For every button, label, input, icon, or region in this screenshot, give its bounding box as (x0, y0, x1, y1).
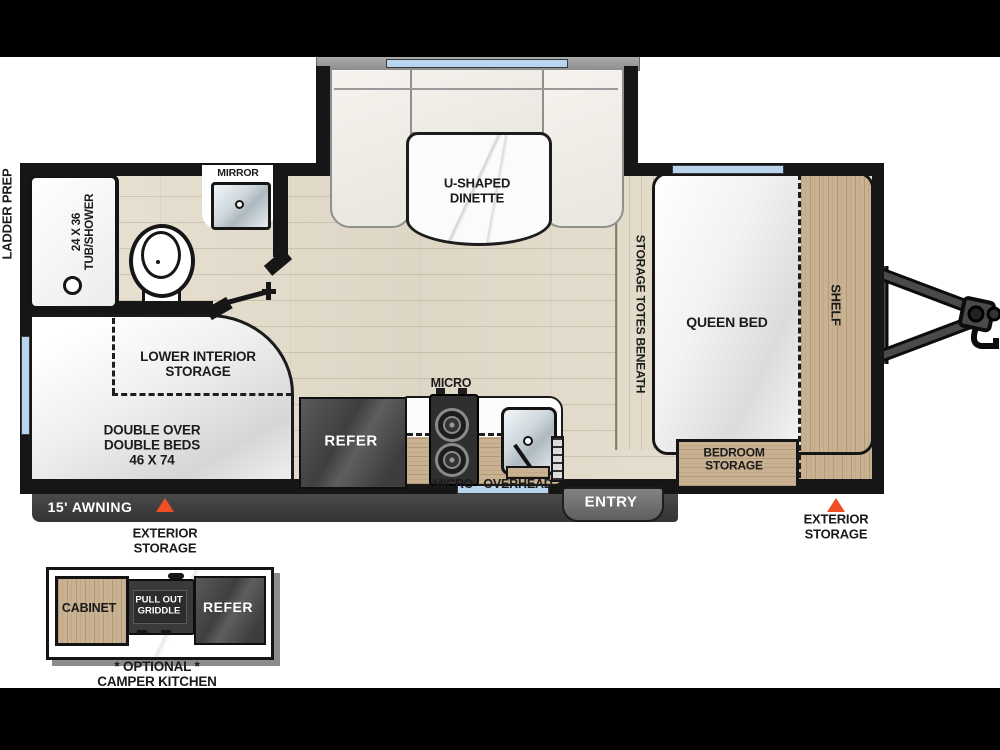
double-beds-label: DOUBLE OVER DOUBLE BEDS 46 X 74 (104, 422, 201, 467)
letterbox-top (0, 0, 1000, 57)
lower-interior-storage-label: LOWER INTERIOR STORAGE (140, 349, 256, 379)
wall-right (872, 163, 884, 494)
lis-line2: STORAGE (140, 364, 256, 379)
mirror-label: MIRROR (217, 168, 258, 180)
sink-drain-dot (235, 200, 244, 209)
tub-shower-label: 24 X 36 TUB/SHOWER (71, 194, 97, 271)
dinette-label-line1: U-SHAPED (444, 176, 510, 191)
dinette-bench-divider (334, 88, 618, 90)
tub-drain-icon (63, 276, 82, 295)
awning-marker-triangle (156, 498, 174, 512)
beds-line3: 46 X 74 (104, 453, 201, 468)
exterior-storage-right-triangle (827, 498, 845, 512)
kitchen-sink-drain (523, 436, 533, 446)
lis-line1: LOWER INTERIOR (140, 349, 256, 364)
caption-line1: * OPTIONAL * (97, 659, 216, 674)
overhead-label: OVERHEAD (483, 477, 552, 491)
bs-line1: BEDROOM (703, 447, 764, 460)
beds-line2: DOUBLE BEDS (104, 437, 201, 452)
awning-label: 15' AWNING (48, 500, 133, 516)
esl-line2: STORAGE (133, 541, 198, 556)
door-latch-horizontal (262, 289, 276, 294)
bunk-storage-dash-horizontal (112, 393, 292, 396)
left-wall-window (21, 336, 30, 435)
esr-line1: EXTERIOR (804, 512, 869, 527)
burner-icon-bottom (435, 443, 469, 477)
esl-line1: EXTERIOR (133, 526, 198, 541)
cabinet-label: CABINET (62, 601, 116, 615)
tub-label-line1: 24 X 36 (71, 194, 84, 271)
camper-kitchen-caption: * OPTIONAL * CAMPER KITCHEN (97, 659, 216, 689)
griddle-foot-left (137, 630, 147, 634)
toilet-bowl-inner (141, 231, 181, 279)
micro-top-label: MICRO (431, 376, 472, 390)
dinette-bench-left (330, 68, 412, 228)
letterbox-bottom (0, 688, 1000, 750)
ladder-prep-label: LADDER PREP (1, 169, 16, 260)
shelf-dash-line (798, 174, 801, 478)
dinette-label: U-SHAPED DINETTE (444, 176, 510, 205)
toilet-drain-dot (156, 260, 160, 264)
dinette-slideout-wall-right (624, 66, 638, 176)
griddle-line2: GRIDDLE (135, 606, 182, 617)
dinette-bench-right (542, 68, 624, 228)
dinette-label-line2: DINETTE (444, 191, 510, 206)
camper-refer-label: REFER (203, 600, 253, 616)
entry-label: ENTRY (585, 495, 638, 512)
bs-line2: STORAGE (703, 460, 764, 473)
floorplan-canvas: U-SHAPED DINETTE 24 X 36 TUB/SHOWER MIRR… (0, 0, 1000, 750)
tub-label-line2: TUB/SHOWER (84, 194, 97, 271)
exterior-storage-right-label: EXTERIOR STORAGE (804, 512, 869, 541)
beds-line1: DOUBLE OVER (104, 422, 201, 437)
exterior-storage-left-label: EXTERIOR STORAGE (133, 526, 198, 555)
refer-label: REFER (324, 434, 377, 451)
dinette-window (386, 59, 568, 68)
bathroom-partition-wall (273, 163, 288, 257)
dinette-slideout-wall-left (316, 66, 330, 176)
bedroom-storage-label: BEDROOM STORAGE (703, 447, 764, 474)
griddle-label: PULL OUT GRIDDLE (135, 595, 182, 616)
bedroom-window (672, 165, 784, 174)
bunk-storage-dash-vertical (112, 318, 115, 394)
trailer-hitch-icon (872, 250, 1000, 378)
shelf-label: SHELF (828, 284, 843, 326)
burner-icon-top (435, 408, 469, 442)
counter-end-grille (551, 436, 564, 482)
esr-line2: STORAGE (804, 527, 869, 542)
caption-line2: CAMPER KITCHEN (97, 674, 216, 689)
griddle-foot-right (161, 630, 171, 634)
micro-bottom-label: MICRO (433, 477, 474, 491)
queen-bed-label: QUEEN BED (686, 315, 767, 331)
storage-totes-label: STORAGE TOTES BENEATH (633, 235, 646, 394)
